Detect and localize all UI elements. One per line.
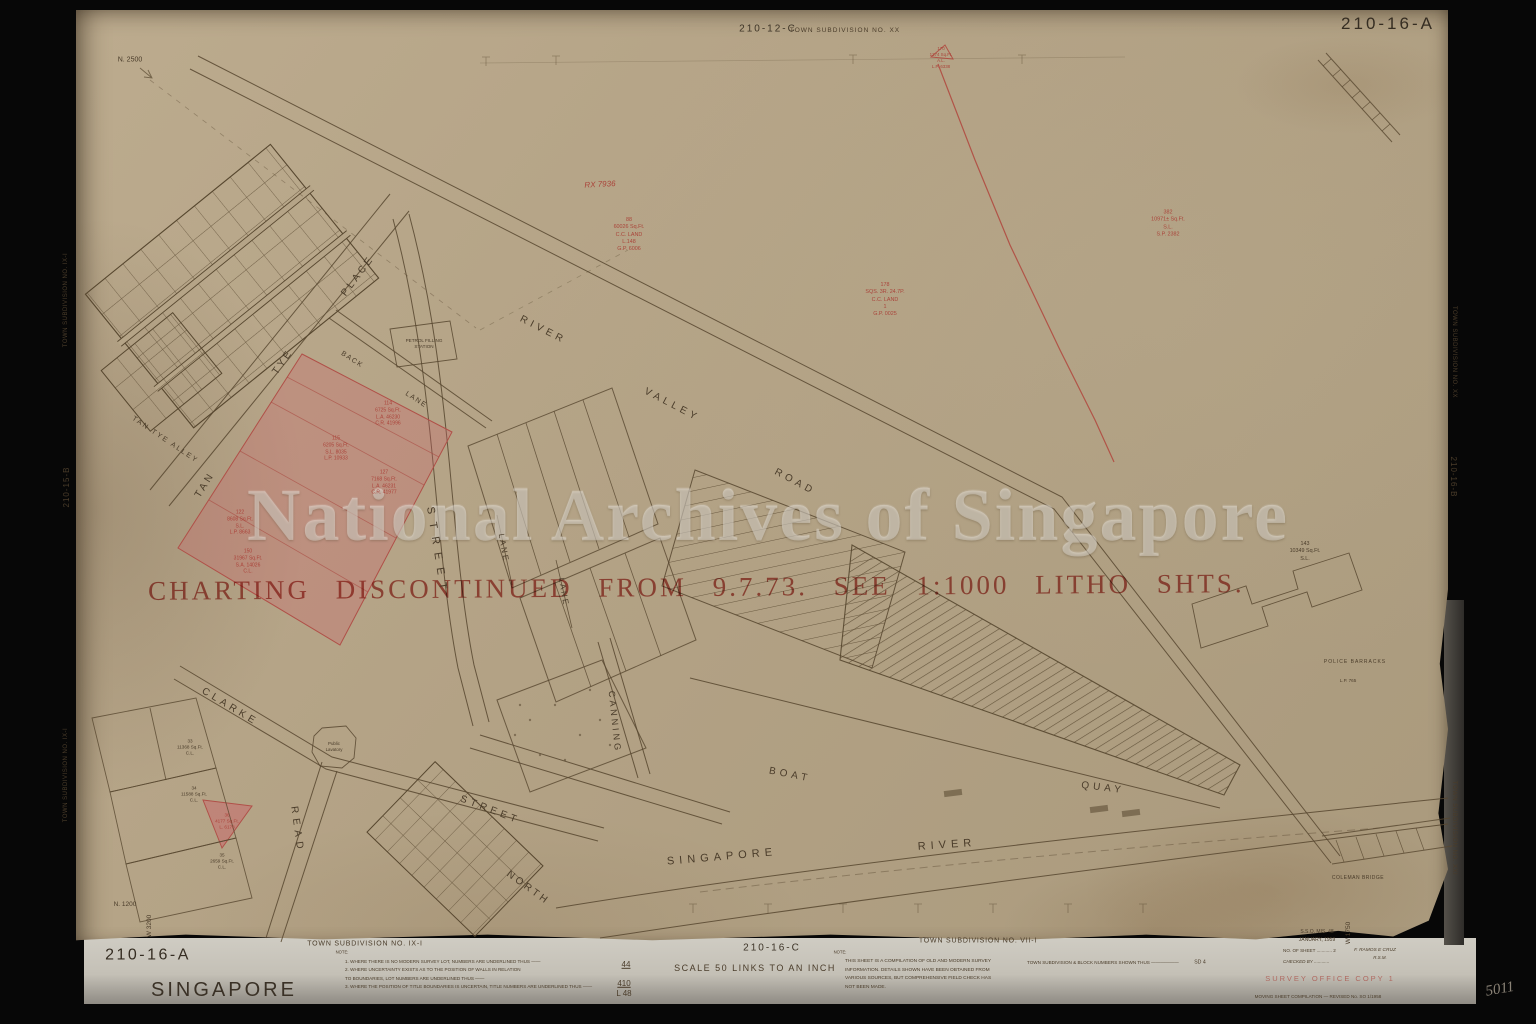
scanned-map-sheet: 210-12-C TOWN SUBDIVISION NO. XX 210-16-… — [0, 0, 1536, 1024]
block-numbers-value: SD 4 — [1194, 960, 1206, 967]
river-walls — [556, 798, 1448, 938]
annotation-lot-170: 170 1274 Sq.Ft. A.L. L.P. 6338 — [930, 46, 953, 70]
lot-35: 35 2659 Sq.Ft. C.L. — [210, 853, 234, 872]
ts-note-right-lines: THIS SHEET IS A COMPILATION OF OLD AND M… — [845, 958, 991, 993]
edge-left-bottom: TOWN SUBDIVISION NO. IX-I — [63, 728, 71, 822]
police-barracks-ref: L.P. 765 — [1340, 678, 1357, 684]
fraction-l48: L 48 — [616, 989, 631, 999]
read-street-lots — [92, 698, 252, 922]
public-lavatory-label: Public Lavatory — [326, 741, 343, 753]
coleman-bridge-label: COLEMAN BRIDGE — [1332, 875, 1384, 882]
parcel-122: 122 8608 Sq.Ft. S.L. L.P. 8663 — [227, 510, 253, 537]
parcel-115: 115 6205 Sq.Ft. S.L. 8035 L.P. 10933 — [323, 436, 349, 463]
block-numbers-note: TOWN SUBDIVISION & BLOCK NUMBERS SHOWN T… — [1027, 960, 1179, 966]
grid-ref-w3200: W 3200 — [146, 915, 154, 937]
parcel-150: 150 31967 Sq.Ft. S.A. 14026 C.L. — [234, 549, 263, 576]
archive-watermark: National Archives of Singapore — [247, 468, 1289, 564]
police-barracks-label: POLICE BARRACKS — [1324, 659, 1386, 666]
sheet-count-line: NO. OF SHEET ............ 2 — [1283, 948, 1336, 954]
edge-right-bottom: TOWN SUBDIVISION NO. XXI — [1449, 781, 1457, 875]
lot-33: 33 11368 Sq.Ft. C.L. — [177, 739, 203, 758]
parcel-114: 114 6725 Sq.Ft. L.A. 46230 C.R. 41996 — [375, 401, 401, 428]
north-boat-quay-lot-grid — [367, 762, 543, 937]
grid-ref-n2500: N. 2500 — [118, 55, 143, 64]
annotation-lot-88: 88 60026 Sq.Ft. C.C. LAND L.148 G.P. 600… — [614, 217, 645, 253]
grid-ref-n1200: N. 1200 — [114, 901, 137, 909]
office-ref: S.S.O. MIS. 48 — [1300, 929, 1333, 936]
edge-right-top: TOWN SUBDIVISION NO. XX — [1449, 306, 1457, 398]
top-subdivision: TOWN SUBDIVISION NO. XX — [790, 27, 900, 35]
red-survey-line — [931, 45, 1114, 462]
traced-by-name: F. RAMOS E CRUZ — [1354, 948, 1396, 954]
grid-ref-w1750: W 1750 — [1345, 922, 1353, 944]
ts-note-left-label: NOTE: — [336, 949, 349, 954]
parcel-127: 127 7168 Sq.Ft. L.A. 46231 C.R. 41977 — [371, 470, 397, 497]
ts-note-right-title: TOWN SUBDIVISION NO. VII-I — [919, 936, 1037, 945]
parcel-36-triangle: 36 4177 Sq.Ft. L. 6178 — [215, 813, 239, 832]
railway-ladder — [1318, 53, 1400, 142]
city-label: SINGAPORE — [151, 977, 297, 1003]
petrol-station-label: PETROL FILLING STATION — [406, 338, 443, 350]
top-ref: 210-12-C — [739, 23, 797, 36]
traced-by-title: R.S.M. — [1373, 955, 1386, 961]
annotation-rx7936: RX 7936 — [584, 179, 616, 191]
checked-by-line: CHECKED BY ............ — [1283, 959, 1329, 965]
edge-right-mid: 210-16-B — [1448, 457, 1458, 498]
fraction-410: 410 — [617, 979, 630, 989]
annotation-lot-382: 382 10971± Sq.Ft. S.L. S.P. 2382 — [1151, 209, 1185, 238]
annotation-lot-178: 178 SQS. 3R. 24.7P. C.C. LAND 1 G.P. 002… — [865, 282, 904, 318]
ref-bottom-center: 210-16-C — [743, 942, 801, 955]
edge-left-mid: 210-15-B — [62, 467, 72, 508]
office-date: JANUARY, 1959 — [1299, 937, 1336, 944]
ts-note-left-lines: 1. WHERE THERE IS NO MODERN SURVEY LOT, … — [345, 958, 592, 992]
sheet-number-top-right: 210-16-A — [1341, 13, 1435, 35]
coleman-bridge — [1322, 818, 1452, 864]
ts-note-left-title: TOWN SUBDIVISION NO. IX-I — [307, 939, 423, 948]
compilation-note: MOVING SHEET COMPILATION — REVISED No. S… — [1255, 994, 1382, 1000]
scale-label: SCALE 50 LINKS TO AN INCH — [674, 963, 836, 975]
lot-34: 34 11588 Sq.Ft. C.L. — [181, 786, 207, 805]
ts-note-right-label: NOTE: — [834, 949, 847, 954]
annotation-lot-143: 143 10349 Sq.Ft. S.L. — [1290, 541, 1321, 563]
survey-office-copy-stamp: SURVEY OFFICE COPY 1 — [1265, 974, 1395, 984]
edge-left-top: TOWN SUBDIVISION NO. IX-I — [63, 253, 71, 347]
fraction-44: 44 — [622, 960, 631, 970]
sheet-number-bottom-left: 210-16-A — [105, 946, 191, 967]
